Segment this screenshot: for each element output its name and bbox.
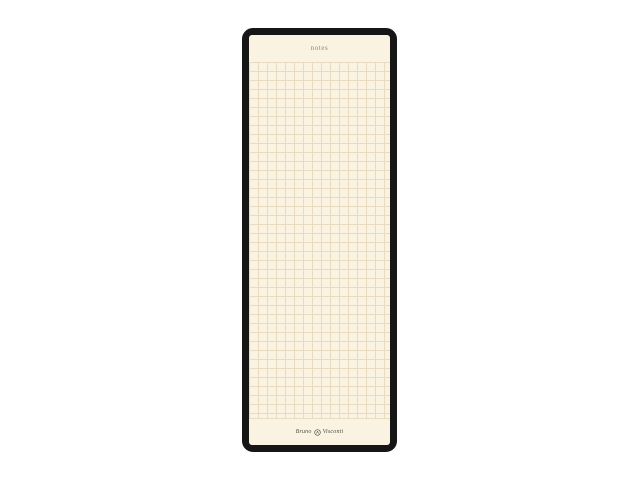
notes-title: notes [311,45,329,52]
notepad-paper: notes Bruno Visconti [249,35,390,445]
notepad-frame: notes Bruno Visconti [242,28,397,452]
grid-paper [249,62,390,419]
brand-logo: Bruno Visconti [249,419,390,445]
brand-name-right: Visconti [323,429,344,435]
canvas: notes Bruno Visconti [0,0,640,480]
round-crest-icon [314,429,321,436]
brand-name-left: Bruno [296,429,312,435]
paper-header: notes [249,35,390,62]
